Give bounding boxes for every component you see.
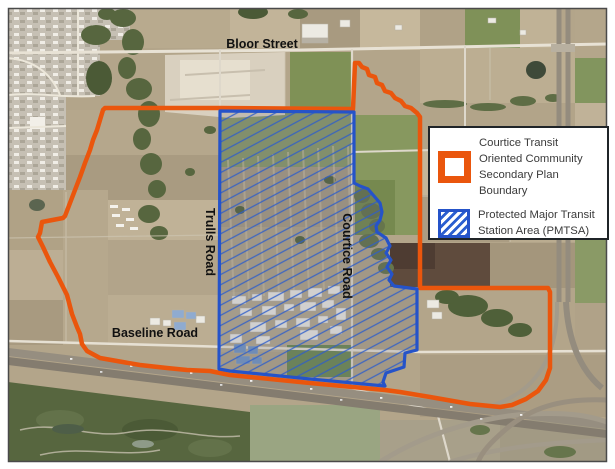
blue-hatch-icon bbox=[438, 209, 470, 238]
bloor-street-label: Bloor Street bbox=[226, 37, 298, 51]
map-figure: Bloor Street Trulls Road Courtice Road B… bbox=[0, 0, 615, 469]
trulls-road-label: Trulls Road bbox=[203, 208, 217, 276]
legend-item-pmtsa: Protected Major Transit Station Area (PM… bbox=[438, 207, 603, 239]
orange-outline-icon bbox=[438, 151, 471, 183]
legend-label-pmtsa: Protected Major Transit Station Area (PM… bbox=[478, 207, 603, 239]
courtice-road-label: Courtice Road bbox=[340, 213, 354, 298]
map-legend: Courtice Transit Oriented Community Seco… bbox=[428, 126, 609, 240]
legend-label-secondary-plan: Courtice Transit Oriented Community Seco… bbox=[479, 135, 603, 199]
baseline-road-label: Baseline Road bbox=[112, 326, 198, 340]
legend-item-secondary-plan: Courtice Transit Oriented Community Seco… bbox=[438, 135, 603, 199]
